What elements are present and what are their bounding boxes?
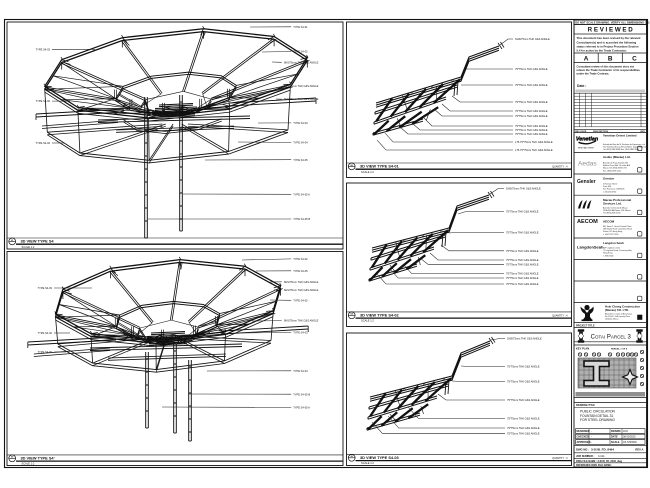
svg-text:LangdonSeah: LangdonSeah <box>577 244 604 249</box>
svg-text:DATE: DATE <box>611 436 618 439</box>
svg-text:75*75mm THK G&S ANGLE: 75*75mm THK G&S ANGLE <box>515 100 548 104</box>
svg-text:Services Ltd.: Services Ltd. <box>603 202 622 206</box>
svg-text:DWG NO :: DWG NO : <box>576 447 589 451</box>
svg-text:75*75mm THK G&S ANGLE: 75*75mm THK G&S ANGLE <box>507 417 540 421</box>
svg-text:75*75mm THK G&S ANGLE: 75*75mm THK G&S ANGLE <box>515 83 548 87</box>
svg-text:20F Leighton Centre: 20F Leighton Centre <box>603 247 620 250</box>
svg-text:SHS/75mm THK G&S ANGLE: SHS/75mm THK G&S ANGLE <box>506 187 541 191</box>
svg-text:DRAWN: DRAWN <box>611 430 621 433</box>
svg-text:B: B <box>608 55 613 62</box>
svg-text:TYPE S4-02: TYPE S4-02 <box>38 331 53 335</box>
svg-text:TYPE S4-02: TYPE S4-02 <box>36 99 51 103</box>
svg-text:DWG FILE NAME : 3-SUB_FD_849: DWG FILE NAME : 3-SUB_FD_8494_dwg <box>576 460 622 463</box>
svg-text:TYPE S4-03: TYPE S4-03 <box>38 286 53 290</box>
svg-text:KEY PLAN: KEY PLAN <box>576 346 589 350</box>
svg-text:75*75mm THK G&S ANGLE: 75*75mm THK G&S ANGLE <box>506 258 539 262</box>
svg-text:Aedas (Macau) Ltd.: Aedas (Macau) Ltd. <box>603 155 631 159</box>
svg-text:Estrada da Baia de N. Senhora: Estrada da Baia de N. Senhora da Esperan… <box>603 143 645 146</box>
svg-text:TYPE S4-05 A: TYPE S4-05 A <box>293 406 310 410</box>
svg-text:3D VIEW TYPE S4-03: 3D VIEW TYPE S4-03 <box>360 455 400 460</box>
svg-text:75*75mm THK G&S ANGLE: 75*75mm THK G&S ANGLE <box>506 262 539 266</box>
svg-text:REFERENCE DWG FILE NAME :: REFERENCE DWG FILE NAME : <box>576 464 612 467</box>
svg-text:Aedas: Aedas <box>578 161 597 168</box>
svg-text:Fax: (853) 2833 1522: Fax: (853) 2833 1522 <box>603 170 621 172</box>
svg-text:TYPE S4-03: TYPE S4-03 <box>36 47 51 51</box>
svg-text:C: C <box>632 55 637 62</box>
svg-text:TYPE S4-05: TYPE S4-05 <box>293 158 308 162</box>
svg-text:75*75mm THK G&S ANGLE: 75*75mm THK G&S ANGLE <box>506 231 539 235</box>
svg-text:R E V I E W E D: R E V I E W E D <box>588 27 634 34</box>
svg-text:(Macau) CO. LTD.: (Macau) CO. LTD. <box>605 308 629 312</box>
svg-text:SCALE 1:2: SCALE 1:2 <box>361 319 374 323</box>
svg-text:75*75mm THK G&S ANGLE: 75*75mm THK G&S ANGLE <box>515 114 548 118</box>
svg-text:QUANTITY : 4: QUANTITY : 4 <box>552 315 568 318</box>
svg-text:L75 75*75mm THK G&S ANGLE: L75 75*75mm THK G&S ANGLE <box>515 140 553 144</box>
svg-text:SHS/75mm THK G&S ANGLE: SHS/75mm THK G&S ANGLE <box>284 84 319 88</box>
svg-text:3-124: 3-124 <box>598 455 605 458</box>
svg-text:14 Andar, Macau: 14 Andar, Macau <box>605 318 619 321</box>
svg-text:75*75mm THK G&S ANGLE: 75*75mm THK G&S ANGLE <box>507 365 540 369</box>
svg-text:REV A: REV A <box>635 447 643 451</box>
svg-text:t: +852 2317 7000: t: +852 2317 7000 <box>603 233 618 236</box>
svg-text:Shatin, NT, Hong Kong: Shatin, NT, Hong Kong <box>603 230 622 233</box>
svg-text:TYPE S4-03: TYPE S4-03 <box>293 121 308 125</box>
svg-text:PROJECT TITLE: PROJECT TITLE <box>576 324 595 327</box>
svg-text:CHECKED: CHECKED <box>577 436 590 439</box>
svg-text:TYPE S4-03: TYPE S4-03 <box>38 350 53 354</box>
svg-text:LKO: LKO <box>623 430 628 433</box>
svg-text:AECOM: AECOM <box>577 219 598 225</box>
svg-text:SCALE 1:2: SCALE 1:2 <box>361 170 374 174</box>
svg-text:75*75mm THK G&S ANGLE: 75*75mm THK G&S ANGLE <box>515 132 548 136</box>
svg-text:relieve the Trade Contractor o: relieve the Trade Contractor of its resp… <box>577 68 641 72</box>
svg-text:VENETIAN ORIENT: VENETIAN ORIENT <box>578 147 595 150</box>
svg-text:75*75mm THK G&S ANGLE: 75*75mm THK G&S ANGLE <box>507 398 540 402</box>
svg-text:A: A <box>584 55 589 62</box>
svg-text:JOB NUMBER :: JOB NUMBER : <box>576 455 595 458</box>
svg-text:75*75mm THK G&S ANGLE: 75*75mm THK G&S ANGLE <box>506 272 539 276</box>
svg-text:TYPE S4-02: TYPE S4-02 <box>36 141 51 145</box>
svg-text:Suite 400: Suite 400 <box>603 185 611 188</box>
svg-text:San Francisco, CA 94105: San Francisco, CA 94105 <box>603 188 624 191</box>
svg-text:SHS/75mm THK G&S ANGLE: SHS/75mm THK G&S ANGLE <box>515 37 550 41</box>
svg-text:Tel: (853) 2870 5700: Tel: (853) 2870 5700 <box>603 213 620 215</box>
svg-text:SHS/75mm THK G&S ANGLE: SHS/75mm THK G&S ANGLE <box>284 60 319 64</box>
svg-text:Consultant review of this docu: Consultant review of this document does … <box>577 64 635 68</box>
svg-text:Avenida Comercial de Macau: Avenida Comercial de Macau <box>603 207 628 210</box>
svg-text:75*75mm THK G&S ANGLE: 75*75mm THK G&S ANGLE <box>515 67 548 71</box>
svg-text:TYPE S4-05: TYPE S4-05 <box>293 269 308 273</box>
svg-text:75*75mm THK G&S ANGLE: 75*75mm THK G&S ANGLE <box>515 128 548 132</box>
svg-text:75*75mm THK G&S ANGLE: 75*75mm THK G&S ANGLE <box>507 426 540 430</box>
svg-text:75*75mm THK G&S ANGLE: 75*75mm THK G&S ANGLE <box>506 276 539 280</box>
svg-text:DRAWING TITLE: DRAWING TITLE <box>576 404 595 407</box>
svg-text:SCALE 1:2: SCALE 1:2 <box>22 245 35 249</box>
svg-text:3-SUB_FD_8494: 3-SUB_FD_8494 <box>591 447 614 451</box>
svg-text:APPROVED: APPROVED <box>577 441 591 444</box>
svg-text:AS SHOWN: AS SHOWN <box>623 441 637 444</box>
svg-text:75*75mm THK G&S ANGLE: 75*75mm THK G&S ANGLE <box>506 249 539 253</box>
svg-text:TYPE S4-02: TYPE S4-02 <box>293 298 308 302</box>
svg-text:08/10/2010: 08/10/2010 <box>623 436 636 439</box>
svg-text:Langdon Seah: Langdon Seah <box>603 241 624 245</box>
svg-text:SHS/75mm THK G&S ANGLE: SHS/75mm THK G&S ANGLE <box>284 97 319 101</box>
svg-text:SHS/75mm THK G&S ANGLE: SHS/75mm THK G&S ANGLE <box>284 280 319 284</box>
svg-text:TYPE S4-02: TYPE S4-02 <box>293 50 308 54</box>
svg-text:Gensler: Gensler <box>603 177 615 181</box>
svg-text:Venetian Orient Limited: Venetian Orient Limited <box>603 134 637 138</box>
svg-text:75*75mm THK G&S ANGLE: 75*75mm THK G&S ANGLE <box>507 380 540 384</box>
svg-text:TYPE S4-02: TYPE S4-02 <box>293 257 308 261</box>
svg-text:8/F, Tower 2, Grand Central Pl: 8/F, Tower 2, Grand Central Plaza <box>603 225 632 228</box>
svg-text:Date :: Date : <box>577 84 586 88</box>
svg-text:FOR STEEL DRAWING: FOR STEEL DRAWING <box>580 418 615 422</box>
svg-text:5.4 for action by the Trade Co: 5.4 for action by the Trade Contractor. <box>577 49 628 53</box>
svg-text:SCALE: SCALE <box>611 441 620 444</box>
svg-text:t: 2830 3500: t: 2830 3500 <box>603 254 614 257</box>
svg-text:SHS/75mm THK G&S ANGLE: SHS/75mm THK G&S ANGLE <box>284 319 319 323</box>
svg-text:75*75mm THK G&S ANGLE: 75*75mm THK G&S ANGLE <box>506 282 539 286</box>
svg-text:PARCEL 1 OF 4: PARCEL 1 OF 4 <box>611 347 628 350</box>
svg-text:QUANTITY : 4: QUANTITY : 4 <box>552 457 568 460</box>
svg-text:75*75mm THK G&S ANGLE: 75*75mm THK G&S ANGLE <box>506 210 539 214</box>
svg-text:DESIGNED: DESIGNED <box>577 430 590 433</box>
svg-text:TYPE S4-04: TYPE S4-04 <box>293 369 308 373</box>
svg-text:SHS/75mm THK G&S ANGLE: SHS/75mm THK G&S ANGLE <box>507 337 542 341</box>
svg-text:L75 75*75mm THK G&S ANGLE: L75 75*75mm THK G&S ANGLE <box>515 148 553 152</box>
svg-text:75*75mm THK G&S ANGLE: 75*75mm THK G&S ANGLE <box>515 109 548 113</box>
svg-text:Gensler: Gensler <box>577 179 596 185</box>
svg-text:TYPE S4-05 B: TYPE S4-05 B <box>293 392 310 396</box>
svg-text:3D VIEW TYPE S4': 3D VIEW TYPE S4' <box>21 456 55 461</box>
svg-text:75*75mm THK G&S ANGLE: 75*75mm THK G&S ANGLE <box>507 431 540 435</box>
svg-text:3D VIEW TYPE S4: 3D VIEW TYPE S4 <box>21 239 55 244</box>
svg-text:TYPE S4-03: TYPE S4-03 <box>293 331 308 335</box>
svg-text:75*75mm THK G&S ANGLE: 75*75mm THK G&S ANGLE <box>515 124 548 128</box>
svg-text:SCALE 1:2: SCALE 1:2 <box>22 462 35 466</box>
svg-text:2 Harrison Street: 2 Harrison Street <box>603 183 618 186</box>
svg-text:SHS/75mm THK G&S ANGLE: SHS/75mm THK G&S ANGLE <box>284 288 319 292</box>
svg-text:SCALE 1:2: SCALE 1:2 <box>361 461 374 465</box>
svg-text:TYPE S4-05 B: TYPE S4-05 B <box>293 217 310 221</box>
svg-text:t: 415.433.3700: t: 415.433.3700 <box>603 190 616 193</box>
svg-text:under the Trade Contract.: under the Trade Contract. <box>577 72 610 76</box>
svg-text:3D VIEW TYPE S4-02: 3D VIEW TYPE S4-02 <box>360 313 400 318</box>
svg-text:Edificio Great Will, 14 andar: Edificio Great Will, 14 andar A-B <box>603 164 631 167</box>
svg-text:77 Leighton Road, Causeway Bay: 77 Leighton Road, Causeway Bay <box>603 249 632 252</box>
svg-text:TYPE S4-01: TYPE S4-01 <box>293 25 308 29</box>
svg-text:138 Shatin Rural Committee Roa: 138 Shatin Rural Committee Road <box>603 228 632 231</box>
svg-text:QUANTITY : 4: QUANTITY : 4 <box>552 166 568 169</box>
svg-text:251A-301 AIA Tower, 20F Macau: 251A-301 AIA Tower, 20F Macau <box>603 209 631 212</box>
svg-text:Avenida da Praia Grande 665: Avenida da Praia Grande 665 <box>603 162 628 165</box>
svg-text:Tel: (853) 2882 8888 Fax: (8: Tel: (853) 2882 8888 Fax: (853) 2882 888… <box>603 149 639 151</box>
svg-text:TYPE S4-04: TYPE S4-04 <box>293 141 308 145</box>
svg-text:TYPE S4-05 A: TYPE S4-05 A <box>293 192 310 196</box>
svg-text:3D VIEW TYPE S4-01: 3D VIEW TYPE S4-01 <box>360 164 400 169</box>
svg-text:AECOM: AECOM <box>603 220 615 224</box>
svg-text:DO NOT SCALE DRAWING. VERIFY A: DO NOT SCALE DRAWING. VERIFY ALL DIMENSI… <box>575 21 650 25</box>
